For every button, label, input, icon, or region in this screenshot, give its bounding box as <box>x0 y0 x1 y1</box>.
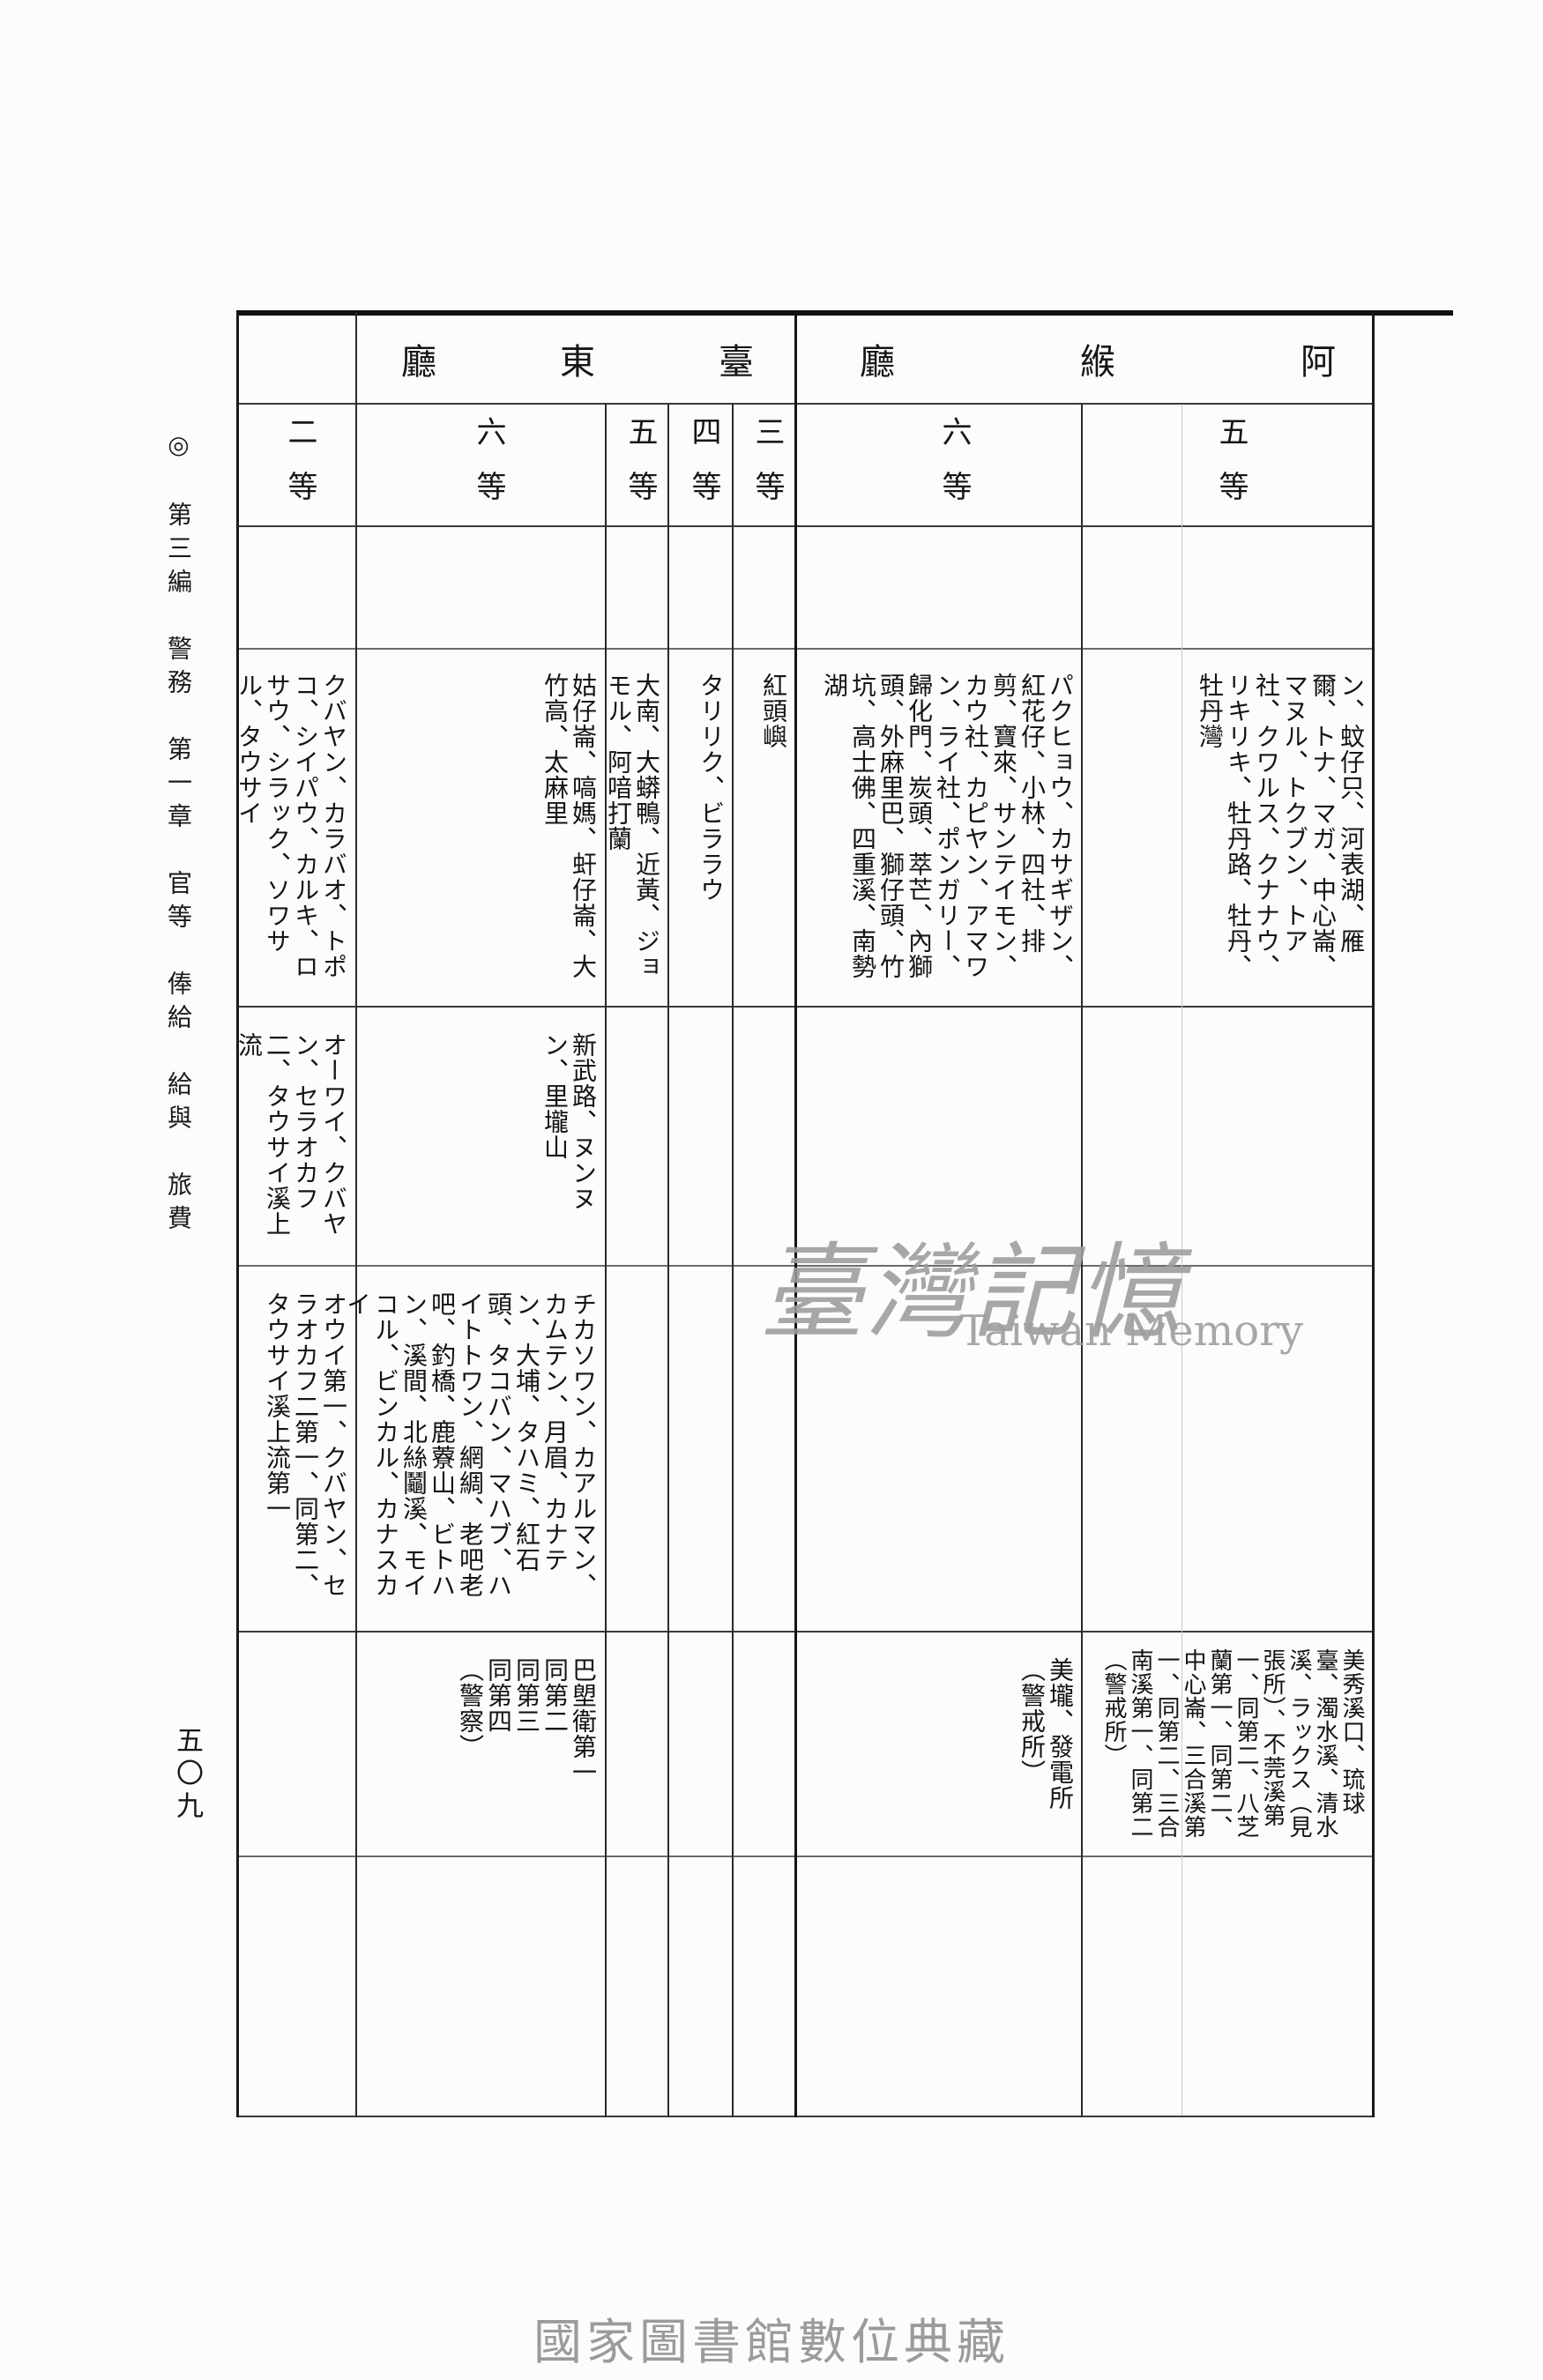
cell-row1-ako-5: ン、蚊仔只、河表湖、雁爾、トナ、マガ、中心崙、マヌル、トクブン、トア社、クワルス… <box>1085 650 1370 1002</box>
cell-row1-taito-2: クバヤン、カラバオ、トポコ、シイパウ、カルキ、ロサウ、シラック、ソワサル、タウサ… <box>240 650 353 1002</box>
cell-row1-ako-6: パクヒョウ、カサギザン、紅花仔、小林、四社、排剪、寶來、サンテイモン、カウ社、カ… <box>799 650 1079 1002</box>
scanned-document-page: 廳東臺 廳緱阿 二等 六等 五等 四等 三等 六等 五等 クバヤン、カラバオ、ト… <box>0 0 1543 2380</box>
grid-line <box>236 310 1453 316</box>
cell-row2-taito-6: 新武路、ヌンヌン、里壠山 <box>359 1009 602 1261</box>
rank-label-taito-4: 四等 <box>682 416 726 525</box>
grid-line <box>236 1006 1373 1008</box>
rank-label-taito-5: 五等 <box>619 416 662 525</box>
grid-line <box>236 525 1373 527</box>
grid-line <box>355 312 357 2117</box>
margin-chapter-note: ◎ 第三編 警務 第一章 官等 俸給 給與 旅費 <box>160 430 196 1259</box>
page-number: 五〇九 <box>168 1726 207 1867</box>
section-header-ako: 廳緱阿 <box>860 333 1336 384</box>
grid-line <box>1372 312 1375 2117</box>
rank-label-taito-6: 六等 <box>467 416 511 525</box>
cell-row1-taito-6: 姑仔崙、嗃媽、虷仔崙、大竹高、太麻里 <box>359 650 602 1002</box>
grid-line <box>236 403 1373 405</box>
grid-line <box>605 404 607 2117</box>
footer-caption: 國家圖書館數位典藏 <box>0 2302 1543 2373</box>
watermark-latin-text: Taiwan Memory <box>959 1306 1303 1356</box>
section-header-taito: 廳東臺 <box>401 333 754 384</box>
cell-row1-taito-5: 大南、大蟒鴨、近黃、ジョモル、阿喑打蘭 <box>608 650 666 1002</box>
rank-label-ako-5: 五等 <box>1210 416 1253 525</box>
grid-line <box>236 2116 1373 2117</box>
rank-label-taito-2: 二等 <box>279 416 322 525</box>
grid-line <box>236 1856 1373 1857</box>
cell-row4-taito-6: 巴塱衛第一 同第二 同第三 同第四 （警察） <box>359 1634 602 1852</box>
cell-row1-taito-4: タリリク、ビララウ <box>670 650 730 1002</box>
cell-row4-ako-6: 美壠、發電所 （警戒所） <box>799 1634 1079 1852</box>
grid-line <box>236 312 239 2117</box>
grid-line <box>732 404 734 2117</box>
rank-label-taito-3: 三等 <box>746 416 789 525</box>
cell-row4-ako-5: 美秀溪口、琉球臺、濁水溪、清水溪、ラックス（見張所）、不莞溪第一、同第二、八芝蘭… <box>1085 1634 1370 1852</box>
cell-row1-taito-3: 紅頭嶼 <box>734 650 793 1002</box>
rank-label-ako-6: 六等 <box>933 416 976 525</box>
grid-line <box>236 1631 1373 1633</box>
cell-row2-taito-2: オーワイ、クバヤン、セラオカフ二、タウサイ溪上流 <box>240 1009 353 1261</box>
grid-line <box>667 404 669 2117</box>
cell-row3-taito-6: チカソワン、カアルマン、カムテン、月眉、カナテン、大埔、タハミ、紅石頭、タコバン… <box>359 1268 602 1627</box>
cell-row3-taito-2: オウイ第一、クバヤン、セラオカフ二第一、同第二、タウサイ溪上流第一 <box>240 1268 353 1627</box>
